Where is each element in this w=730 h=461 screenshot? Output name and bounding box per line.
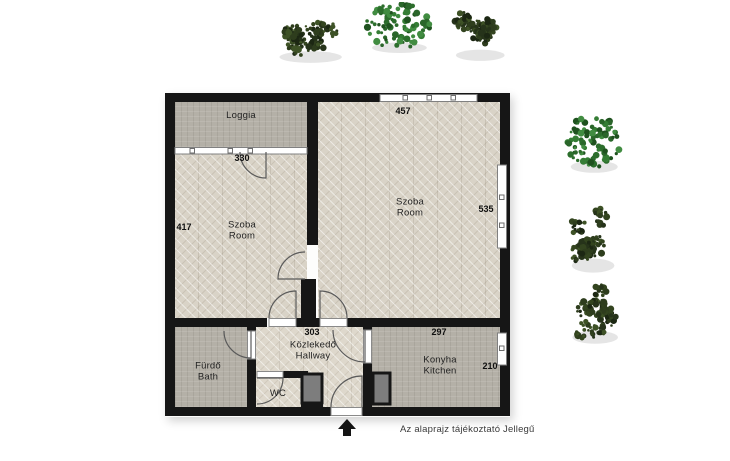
window-mullion xyxy=(500,346,505,351)
door-swing xyxy=(278,252,305,279)
bath-label: FürdőBath xyxy=(195,362,221,383)
shaft xyxy=(302,374,322,403)
dim-room-right-side: 535 xyxy=(478,204,493,214)
dim-kitchen-top: 297 xyxy=(431,327,446,337)
dim-hallway-top: 303 xyxy=(304,327,319,337)
caption: Az alaprajz tájékoztató Jellegű xyxy=(400,424,535,435)
door-threshold xyxy=(257,372,283,378)
door-swing xyxy=(333,330,365,362)
door-swing xyxy=(269,291,296,318)
window xyxy=(498,165,507,248)
dim-kitchen-side: 210 xyxy=(482,361,497,371)
door-threshold xyxy=(320,319,347,327)
wc-label: WC xyxy=(270,389,286,400)
tree-icon xyxy=(447,6,511,62)
door-swing xyxy=(331,376,362,407)
wall-segment xyxy=(247,318,256,331)
tree-icon xyxy=(562,114,624,174)
floorplan-canvas: Loggia SzobaRoom SzobaRoom KözlekedőHall… xyxy=(0,0,730,461)
window-mullion xyxy=(451,96,456,101)
window-mullion xyxy=(427,96,432,101)
window-mullion xyxy=(500,223,505,228)
entrance-arrow-stem xyxy=(343,428,351,436)
shaft xyxy=(373,373,390,404)
wall-segment xyxy=(363,363,372,416)
room-left-label: SzobaRoom xyxy=(228,221,256,242)
loggia-label: Loggia xyxy=(226,111,256,122)
tree-icon xyxy=(362,2,434,54)
wall-segment xyxy=(296,318,320,327)
hallway-label: KözlekedőHallway xyxy=(290,341,336,362)
wall-segment xyxy=(500,93,510,416)
dim-room-left-top: 330 xyxy=(234,153,249,163)
wall-segment xyxy=(362,407,510,416)
door-threshold xyxy=(331,408,362,416)
room-right-label: SzobaRoom xyxy=(396,198,424,219)
dim-room-right-top: 457 xyxy=(395,106,410,116)
door-swing xyxy=(224,331,251,358)
window-mullion xyxy=(403,96,408,101)
door-swing xyxy=(320,291,347,318)
window-mullion xyxy=(228,149,233,154)
tree-icon xyxy=(564,204,620,274)
kitchen-label: KonyhaKitchen xyxy=(423,356,456,377)
tree-icon xyxy=(564,281,624,345)
window-mullion xyxy=(190,149,195,154)
door-threshold xyxy=(269,319,296,327)
wall-segment xyxy=(247,359,256,416)
wall-segment xyxy=(307,93,318,245)
window-mullion xyxy=(500,195,505,200)
wall-segment xyxy=(363,318,372,330)
tree-icon xyxy=(268,6,350,64)
dim-room-left-side: 417 xyxy=(176,222,191,232)
wall-segment xyxy=(165,93,175,416)
